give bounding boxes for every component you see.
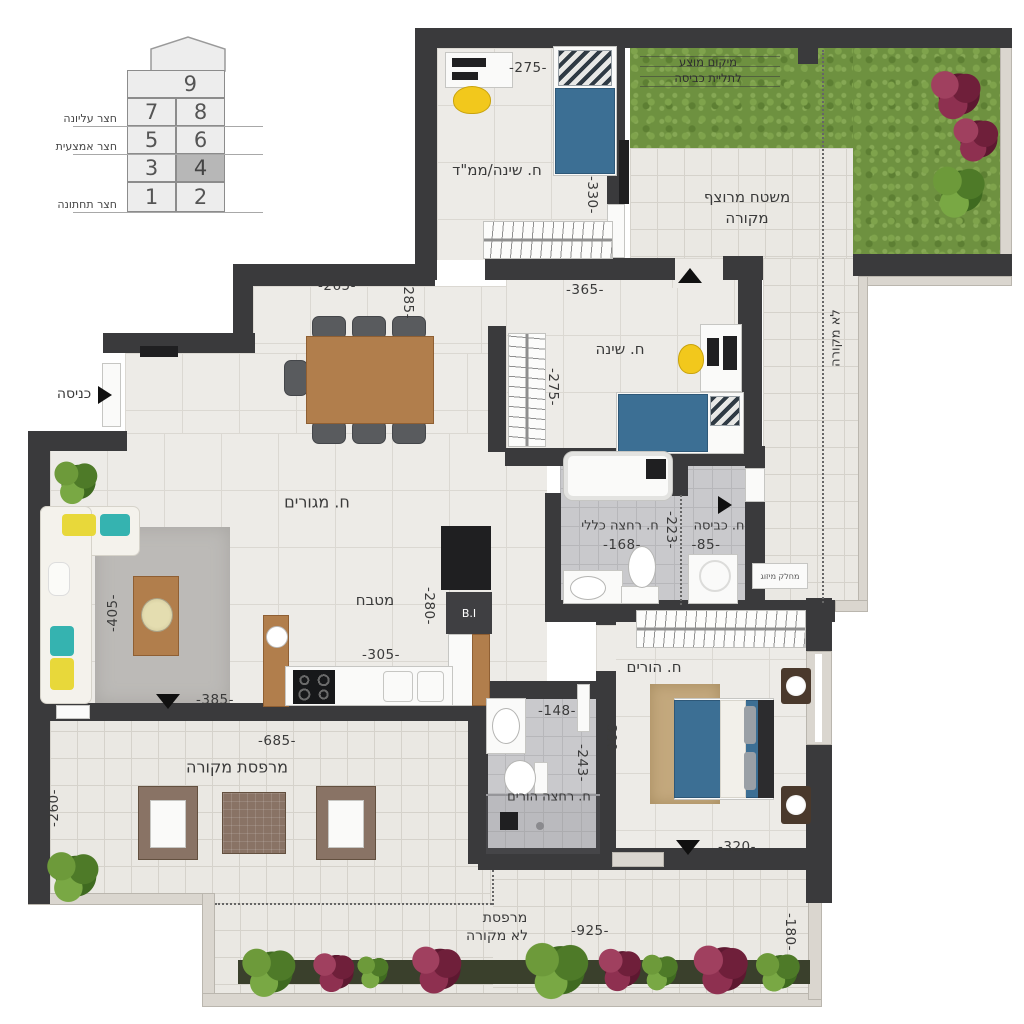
planter-plant-purple: [594, 942, 646, 994]
legend-unit-5: 5: [127, 126, 176, 154]
wall-bath-left: [545, 493, 561, 610]
wall-hall-top: [103, 333, 255, 353]
wall-shelf: [140, 346, 178, 357]
wall-entry-bottom: [28, 431, 127, 451]
dining-chair: [284, 360, 308, 396]
kitchen-sink: [417, 671, 444, 702]
room-label-safe-bedroom: ח. שינה/ממ"ד: [452, 161, 542, 179]
wall-grass-bottom: [853, 254, 1012, 276]
kitchen-basin-round: [266, 626, 288, 648]
label-uncovered-strip: לא מקורה: [829, 309, 844, 367]
dim-safe-height: -330-: [584, 176, 600, 214]
label-paved-covered-2: מקורה: [725, 209, 768, 227]
vanity-basin: [570, 576, 606, 600]
bed-pillow: [744, 706, 756, 744]
dim-master-width: -320-: [718, 839, 756, 855]
shower-drain: [536, 822, 544, 830]
room-label-laundry: ח. כביסה: [694, 519, 745, 534]
dim-master-height: -390-: [603, 719, 619, 757]
legend-line-lower: [73, 212, 263, 213]
legend-yard-upper: חצר עליונה: [45, 112, 117, 125]
label-terrace-uncovered-2: לא מקורה: [466, 928, 528, 944]
room-label-bedroom: ח. שינה: [595, 340, 644, 358]
dim-bathroom-width: -168-: [603, 537, 641, 553]
room-label-bathroom-master: ח. רחצה הורים: [507, 790, 591, 805]
dim-mbath-width: -148-: [538, 703, 576, 719]
floor-plan-canvas: 9 7 8 5 6 3 4 1 2 חצר עליונה חצר אמצעית …: [0, 0, 1024, 1024]
wall-grass-notch: [798, 44, 818, 64]
potted-plant: [52, 456, 100, 506]
terrace-table: [222, 792, 286, 854]
planter-plant-purple: [686, 940, 756, 996]
ac-divider-label: מחלק מיזוג: [761, 572, 800, 581]
dim-bedroom-width: -365-: [566, 282, 604, 298]
dim-dining-width: -265-: [318, 278, 356, 294]
window-master-bottom: [612, 852, 664, 867]
sofa-pillow-white: [48, 562, 70, 596]
dotted-line-terrace-h: [215, 903, 492, 905]
bed-pillow: [710, 396, 740, 426]
dim-laundry-width: -85-: [692, 537, 721, 553]
planter-plant-purple: [406, 940, 468, 996]
planter-plant-green: [752, 950, 804, 992]
dim-mbath-height: -243-: [574, 744, 590, 782]
wall-dining-left: [233, 264, 253, 338]
planter-plant-green: [640, 950, 680, 992]
legend-line-middle: [73, 154, 263, 155]
desk-chair: [453, 86, 491, 114]
dim-hall-height: -223-: [663, 511, 679, 549]
exterior-edge-right-top: [1000, 44, 1012, 272]
exterior-edge-strip-bottom: [835, 600, 868, 612]
legend-line-upper: [73, 126, 263, 127]
closet: [636, 610, 806, 648]
wall-bedroom-left: [488, 326, 506, 452]
washing-machine-door: [699, 560, 731, 592]
legend-unit-1: 1: [127, 182, 176, 212]
desk-laptop: [707, 338, 719, 366]
sofa-pillow-yellow: [62, 514, 96, 536]
bed-pillow: [744, 752, 756, 790]
cooktop: [293, 670, 335, 704]
exterior-edge-strip-right: [858, 276, 868, 607]
laundry-door-marker: [718, 496, 732, 514]
wall-top: [415, 28, 1012, 48]
potted-plant: [44, 846, 102, 904]
dotted-line-strip: [822, 50, 824, 603]
wall-safe-left: [415, 28, 437, 280]
door-laundry: [745, 468, 765, 502]
sofa-pillow-yellow: [50, 658, 74, 690]
sofa-pillow-teal: [100, 514, 130, 536]
dim-terrace-unc-height: -180-: [782, 913, 798, 951]
exterior-edge-grass-bottom: [858, 276, 1012, 286]
wall-bath-laundry-stub: [672, 450, 688, 496]
room-label-master-bedroom: ח. הורים: [627, 658, 682, 676]
bed-pillow: [558, 50, 612, 86]
exterior-edge-terrace-step: [202, 893, 215, 1003]
room-label-living: ח. מגורים: [284, 493, 350, 512]
door-leaf-mbath: [577, 684, 590, 732]
bed-blanket: [555, 88, 615, 174]
plant-bougainvillea: [948, 112, 1004, 164]
counter-wood-edge: [472, 634, 490, 706]
legend-unit-6: 6: [176, 126, 225, 154]
sofa-pillow-teal: [50, 626, 74, 656]
kitchen-sink: [383, 671, 413, 702]
desk-chair: [678, 344, 704, 374]
bathtub-faucet: [646, 459, 666, 479]
legend-unit-3: 3: [127, 154, 176, 182]
planter-plant-green: [356, 952, 390, 990]
dim-terrace-cov-width: -685-: [258, 733, 296, 749]
room-label-kitchen: מטבח: [356, 591, 394, 609]
ac-divider-box: מחלק מיזוג: [752, 563, 808, 589]
bed-blanket: [618, 394, 708, 452]
entrance-arrow: [98, 386, 112, 404]
dim-terrace-unc-width: -925-: [571, 923, 609, 939]
dim-dining-height: -285-: [400, 281, 416, 319]
bed-headboard: [758, 700, 774, 798]
clothesline: [640, 86, 780, 87]
armchair-cushion: [328, 800, 364, 848]
legend-unit-4-selected: 4: [176, 154, 225, 182]
terrace-door-marker: [156, 694, 180, 709]
closet: [508, 333, 546, 447]
label-terrace-uncovered-1: מרפסת: [483, 910, 527, 926]
legend-unit-8: 8: [176, 98, 225, 126]
planter-plant-purple: [308, 948, 360, 994]
dim-living-height: -405-: [105, 594, 121, 632]
dim-safe-width: -275-: [509, 60, 547, 76]
legend-yard-middle: חצר אמצעית: [43, 140, 117, 153]
planter-plant-green: [520, 938, 594, 1000]
window-master-right-pane: [815, 654, 822, 742]
dim-bedroom-height: -275-: [545, 368, 561, 406]
table-bowl: [141, 598, 173, 632]
legend-unit-2: 2: [176, 182, 225, 212]
door-leaf-safe: [619, 140, 629, 204]
room-label-bathroom-general: ח. רחצה כללי: [581, 519, 659, 534]
built-in-label: B.I: [462, 607, 476, 620]
legend-unit-7: 7: [127, 98, 176, 126]
plant-palm: [930, 160, 988, 220]
label-entrance: כניסה: [57, 386, 91, 402]
wall-safe-bottom: [485, 258, 675, 280]
dim-terrace-cov-height: -260-: [46, 789, 62, 827]
uncovered-strip-area: [763, 258, 858, 605]
door-master: [596, 625, 616, 671]
shower-fixture: [500, 812, 518, 830]
dotted-line-terrace-v: [492, 870, 494, 905]
legend-unit-9: 9: [127, 70, 225, 98]
door-terrace: [56, 705, 90, 719]
desk-keyboard: [452, 72, 478, 80]
dim-living-width: -385-: [196, 692, 234, 708]
nightstand-lamp: [781, 668, 811, 704]
vanity-basin: [492, 708, 520, 744]
doorway-marker: [678, 268, 702, 283]
label-terrace-covered: מרפסת מקורה: [186, 758, 288, 777]
dim-kitchen-height: -280-: [421, 587, 437, 625]
master-window-marker: [676, 840, 700, 855]
label-laundry-hint-1: מיקום מוצע: [679, 55, 737, 69]
dining-table: [306, 336, 434, 424]
closet: [483, 221, 613, 259]
label-laundry-hint-2: לתליית כביסה: [674, 71, 741, 85]
wall-mbath-left: [468, 681, 488, 864]
nightstand-lamp: [781, 786, 811, 824]
built-in-oven: B.I: [446, 592, 492, 634]
label-paved-covered-1: משטח מרוצף: [704, 188, 790, 206]
desk-monitor: [452, 58, 486, 67]
bed-runner: [720, 700, 746, 798]
planter-plant-green: [238, 944, 300, 998]
desk-monitor: [723, 336, 737, 370]
dotted-line-laundry: [680, 495, 682, 605]
toilet-tank: [621, 586, 659, 604]
legend-yard-lower: חצר תחתונה: [43, 198, 117, 211]
dim-kitchen-width: -305-: [362, 647, 400, 663]
exterior-edge-terrace-right: [808, 900, 822, 1000]
refrigerator: [441, 526, 491, 590]
armchair-cushion: [150, 800, 186, 848]
